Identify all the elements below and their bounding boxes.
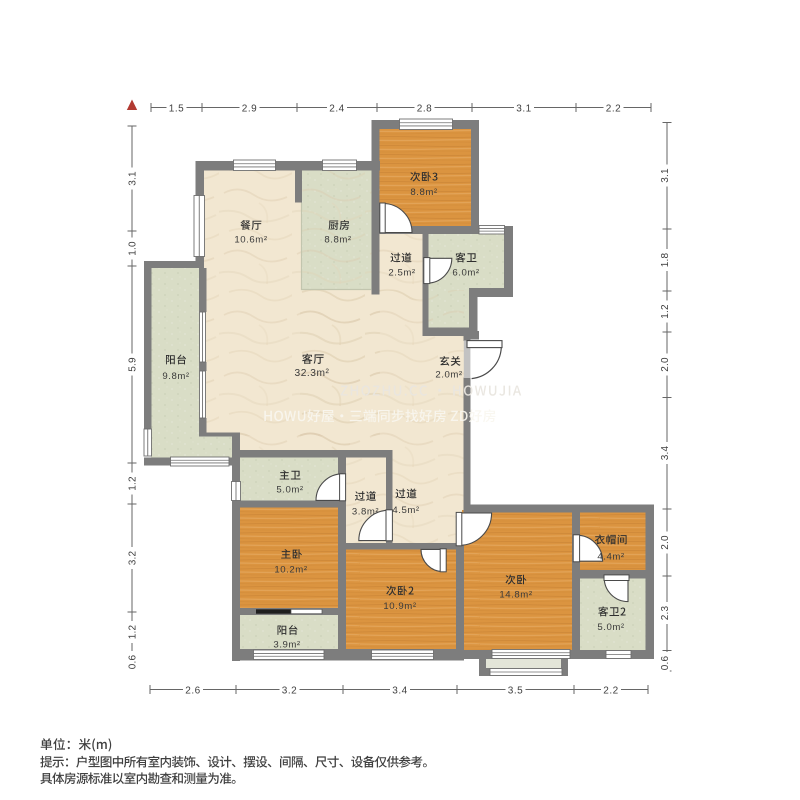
svg-text:1.2: 1.2 bbox=[128, 476, 139, 491]
svg-text:3.2: 3.2 bbox=[282, 686, 298, 697]
svg-text:14.8m²: 14.8m² bbox=[499, 590, 532, 601]
svg-text:4.4m²: 4.4m² bbox=[597, 552, 625, 563]
svg-text:8.8m²: 8.8m² bbox=[410, 187, 438, 198]
svg-text:3.4: 3.4 bbox=[392, 686, 408, 697]
svg-text:5.0m²: 5.0m² bbox=[597, 622, 625, 633]
svg-text:1.2: 1.2 bbox=[128, 625, 139, 640]
svg-text:4.5m²: 4.5m² bbox=[392, 505, 420, 516]
svg-text:3.8m²: 3.8m² bbox=[352, 507, 380, 518]
svg-text:3.2: 3.2 bbox=[128, 551, 139, 566]
svg-text:2.4: 2.4 bbox=[329, 104, 345, 115]
svg-text:2.8: 2.8 bbox=[417, 104, 433, 115]
svg-text:2.9: 2.9 bbox=[242, 104, 258, 115]
svg-text:9.8m²: 9.8m² bbox=[162, 371, 190, 382]
svg-text:5.0m²: 5.0m² bbox=[276, 485, 304, 496]
svg-text:1.8: 1.8 bbox=[660, 253, 671, 268]
svg-text:10.6m²: 10.6m² bbox=[234, 235, 267, 246]
svg-text:3.1: 3.1 bbox=[516, 104, 532, 115]
svg-text:3.5: 3.5 bbox=[508, 686, 524, 697]
svg-text:8.8m²: 8.8m² bbox=[324, 235, 352, 246]
svg-text:2.0m²: 2.0m² bbox=[435, 370, 463, 381]
svg-text:2.3: 2.3 bbox=[660, 606, 671, 621]
svg-text:2.0: 2.0 bbox=[660, 535, 671, 550]
svg-text:1.0: 1.0 bbox=[128, 241, 139, 256]
svg-text:0.6: 0.6 bbox=[660, 656, 671, 671]
svg-text:0.6: 0.6 bbox=[128, 655, 139, 670]
svg-text:5.9: 5.9 bbox=[128, 357, 139, 372]
svg-text:1.2: 1.2 bbox=[660, 304, 671, 319]
svg-text:2.2: 2.2 bbox=[606, 104, 622, 115]
svg-text:32.3m²: 32.3m² bbox=[294, 368, 329, 379]
svg-text:3.9m²: 3.9m² bbox=[273, 640, 301, 651]
svg-text:3.1: 3.1 bbox=[128, 171, 139, 186]
svg-text:3.1: 3.1 bbox=[660, 168, 671, 183]
svg-text:6.0m²: 6.0m² bbox=[452, 268, 480, 279]
svg-text:3.4: 3.4 bbox=[660, 446, 671, 461]
svg-text:1.5: 1.5 bbox=[169, 104, 185, 115]
svg-text:2.2: 2.2 bbox=[603, 686, 619, 697]
svg-text:2.6: 2.6 bbox=[185, 686, 201, 697]
svg-text:2.0: 2.0 bbox=[660, 357, 671, 372]
svg-text:10.9m²: 10.9m² bbox=[383, 601, 416, 612]
svg-text:10.2m²: 10.2m² bbox=[274, 565, 307, 576]
svg-text:2.5m²: 2.5m² bbox=[388, 268, 416, 279]
